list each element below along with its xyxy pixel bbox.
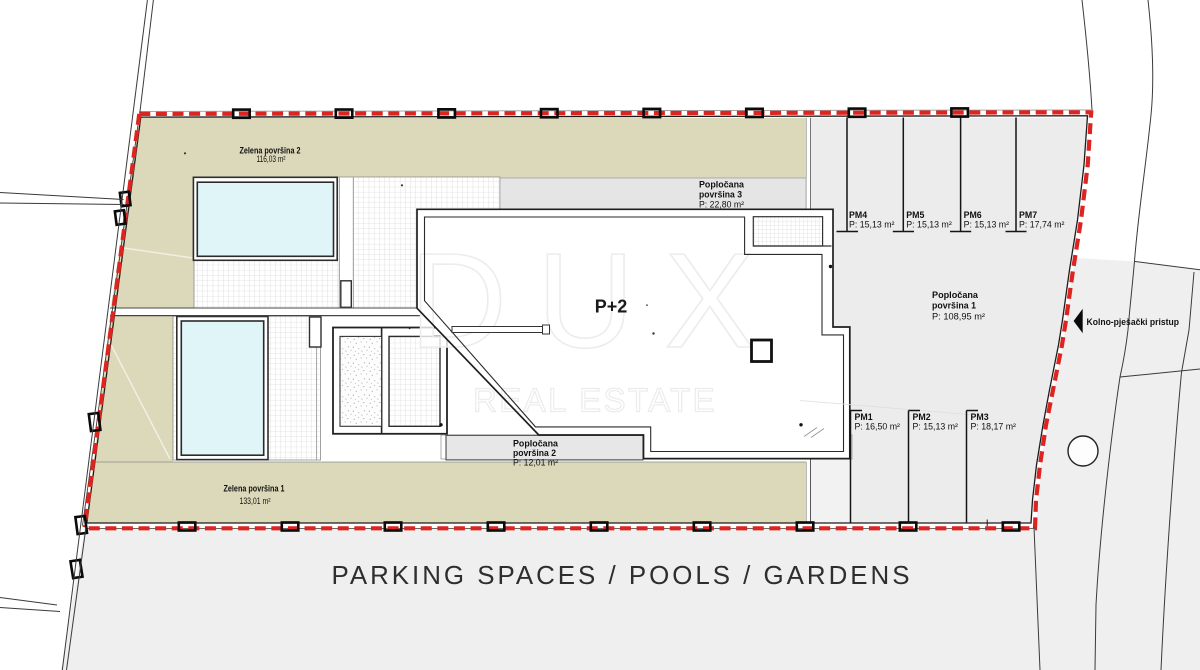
svg-text:P: 15,13 m²: P: 15,13 m² xyxy=(913,422,959,432)
svg-text:P: 15,13 m²: P: 15,13 m² xyxy=(849,219,895,229)
svg-text:Kolno-pješački pristup: Kolno-pješački pristup xyxy=(1087,317,1180,327)
svg-text:P: 12,01 m²: P: 12,01 m² xyxy=(513,458,558,468)
svg-text:Zelena površina 1: Zelena površina 1 xyxy=(224,484,285,494)
svg-text:Popločana: Popločana xyxy=(513,439,558,449)
svg-text:133,01 m²: 133,01 m² xyxy=(240,496,271,506)
svg-text:P: 22,80 m²: P: 22,80 m² xyxy=(699,200,744,210)
svg-text:P: 15,13 m²: P: 15,13 m² xyxy=(964,219,1010,229)
svg-text:P: 15,13 m²: P: 15,13 m² xyxy=(906,219,952,229)
svg-text:116,03 m²: 116,03 m² xyxy=(257,154,286,164)
svg-text:PARKING SPACES / POOLS / GARDE: PARKING SPACES / POOLS / GARDENS xyxy=(332,560,913,590)
svg-text:Popločana: Popločana xyxy=(932,290,979,300)
svg-text:PM3: PM3 xyxy=(971,412,989,422)
svg-text:P+2: P+2 xyxy=(595,297,628,317)
svg-text:P: 18,17 m²: P: 18,17 m² xyxy=(971,422,1017,432)
svg-text:PM2: PM2 xyxy=(913,412,931,422)
svg-text:P: 16,50 m²: P: 16,50 m² xyxy=(855,422,901,432)
svg-text:P: 108,95 m²: P: 108,95 m² xyxy=(932,312,985,322)
svg-text:REAL ESTATE: REAL ESTATE xyxy=(473,382,717,419)
svg-text:PM1: PM1 xyxy=(855,412,873,422)
svg-text:P: 17,74 m²: P: 17,74 m² xyxy=(1019,219,1065,229)
svg-text:površina 2: površina 2 xyxy=(513,448,556,458)
svg-text:površina 3: površina 3 xyxy=(699,190,742,200)
svg-text:površina 1: površina 1 xyxy=(932,301,976,311)
svg-text:Popločana: Popločana xyxy=(699,180,744,190)
